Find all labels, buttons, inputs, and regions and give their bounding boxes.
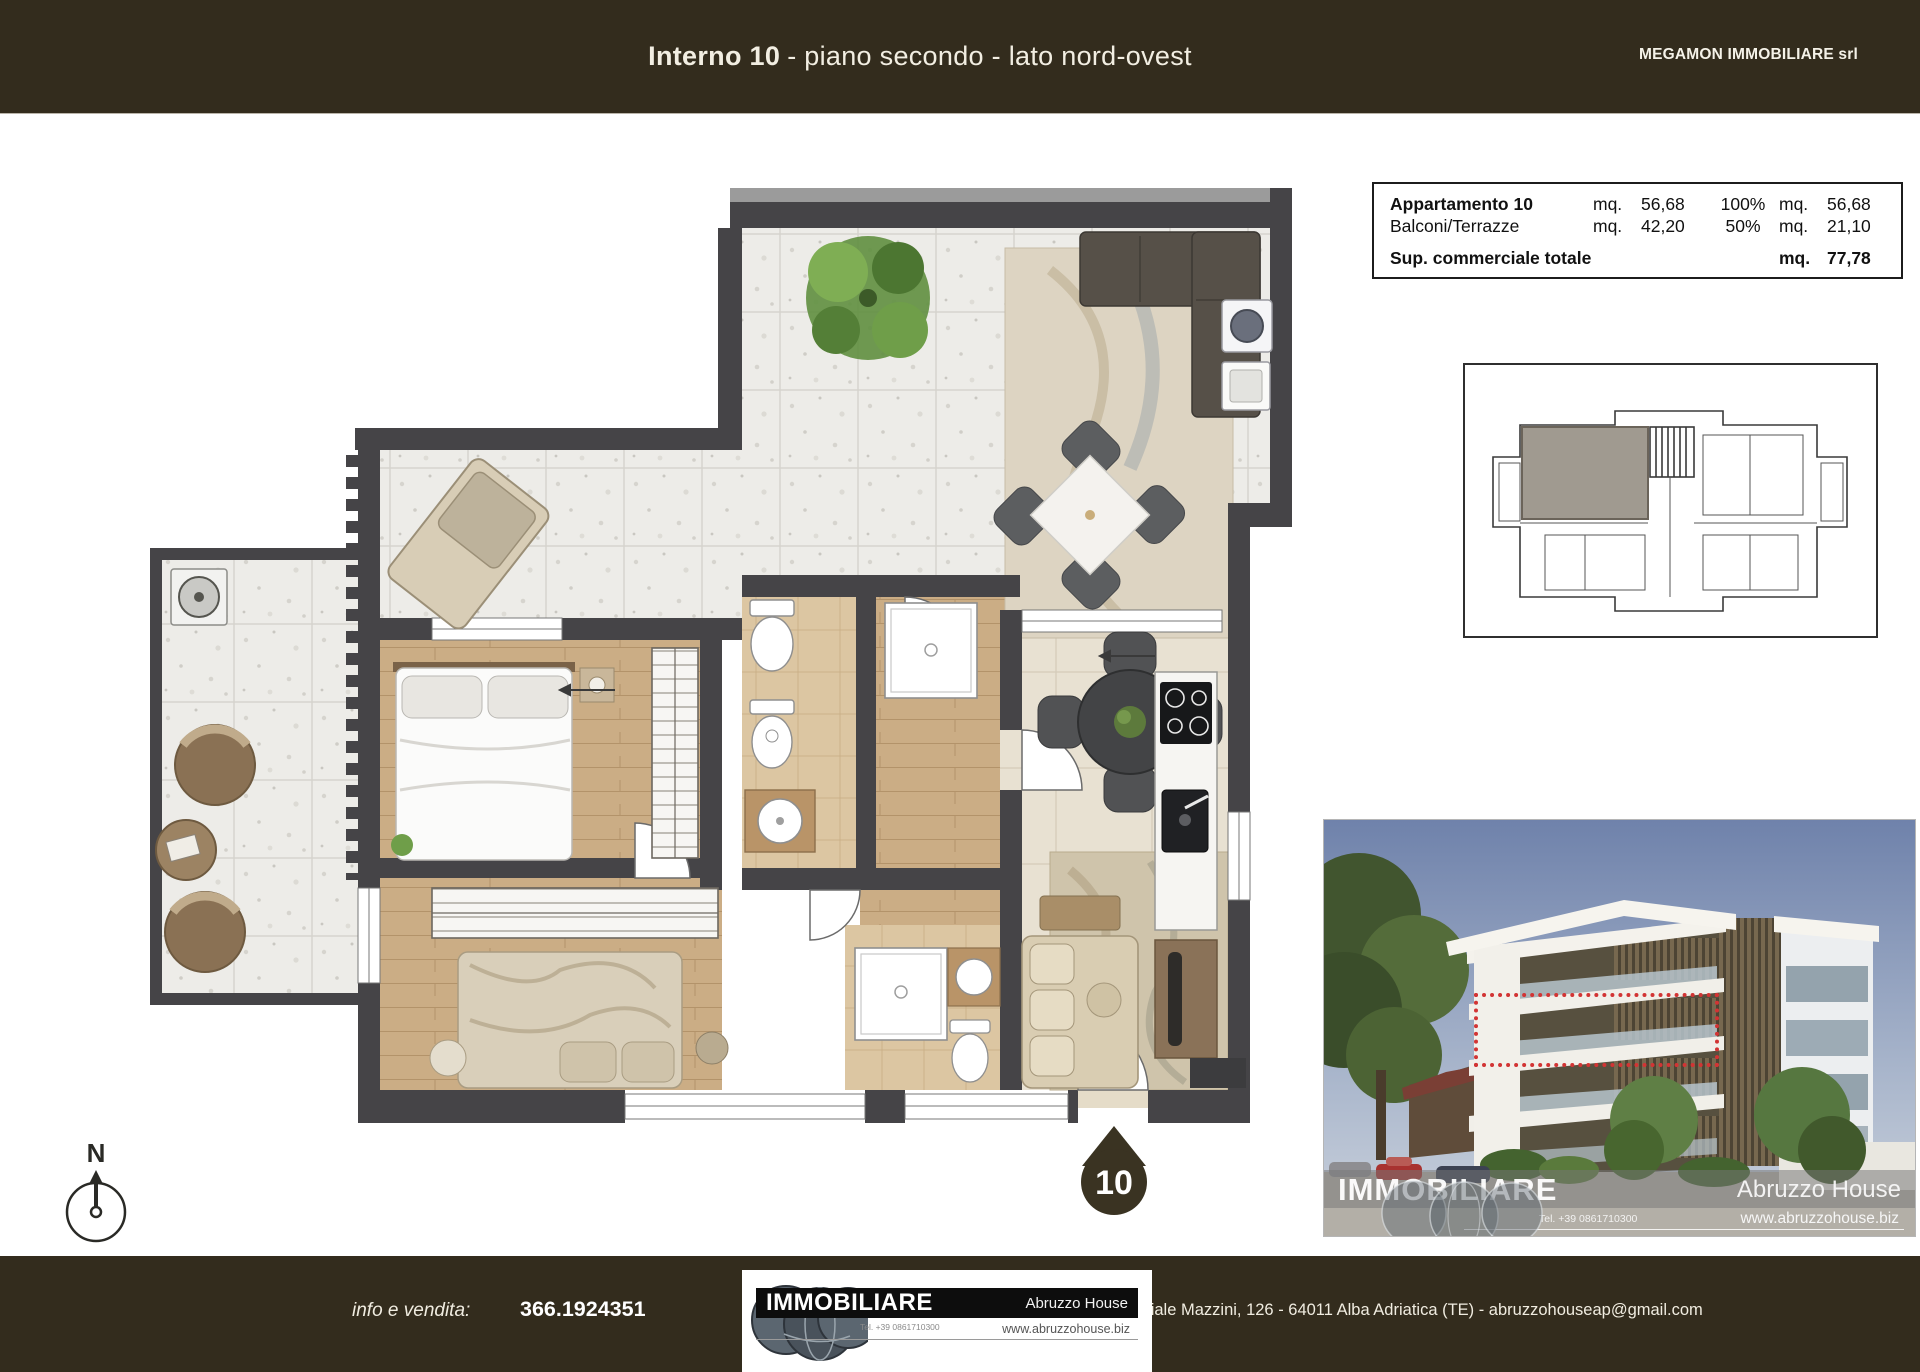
building-render-photo: IMMOBILIARE Abruzzo House Tel. +39 08617…	[1323, 819, 1916, 1237]
footer-address: Viale Mazzini, 126 - 64011 Alba Adriatic…	[1140, 1301, 1703, 1320]
bidet	[750, 700, 794, 768]
toilet-2	[950, 1020, 990, 1082]
north-label: N	[87, 1138, 106, 1168]
watermark-site: www.abruzzohouse.biz	[1740, 1210, 1899, 1228]
watermark-name: Abruzzo House	[1737, 1176, 1901, 1204]
washing-machine	[1222, 300, 1272, 352]
brochure-page: Interno 10 - piano secondo - lato nord-o…	[0, 0, 1920, 1372]
unit-10-marker: 10	[1081, 1126, 1147, 1215]
unit-number-label: 10	[1095, 1164, 1133, 1202]
toilet	[750, 600, 794, 671]
fridge-column	[1190, 1058, 1246, 1088]
tv-sideboard	[1155, 940, 1217, 1058]
footer-phone: 366.1924351	[520, 1297, 646, 1322]
outdoor-sink	[1222, 362, 1270, 410]
shower-2	[855, 948, 947, 1040]
washbasin-2	[948, 948, 1000, 1006]
shower	[885, 603, 977, 698]
agency-logo-bar: IMMOBILIARE Abruzzo House	[756, 1288, 1138, 1318]
potted-plant	[806, 236, 930, 360]
agency-name: Abruzzo House	[1025, 1295, 1128, 1312]
footer-info-label: info e vendita:	[352, 1300, 470, 1322]
agency-logo-block: IMMOBILIARE Abruzzo House Tel. +39 08617…	[742, 1270, 1152, 1372]
wardrobe	[652, 648, 698, 858]
agency-logo-sub: Tel. +39 0861710300 www.abruzzohouse.biz	[756, 1320, 1138, 1340]
agency-brand: IMMOBILIARE	[766, 1289, 933, 1317]
washbasin	[745, 790, 815, 852]
kitchen-counter	[1155, 672, 1217, 930]
wardrobe-2	[432, 888, 718, 938]
north-compass-icon: N	[67, 1138, 125, 1241]
ac-unit	[171, 569, 227, 625]
agency-site: www.abruzzohouse.biz	[1002, 1322, 1130, 1336]
agency-tel: Tel. +39 0861710300	[860, 1322, 940, 1336]
globe-logo-icon	[1374, 1178, 1554, 1237]
apartment-highlight-box	[1474, 993, 1719, 1067]
